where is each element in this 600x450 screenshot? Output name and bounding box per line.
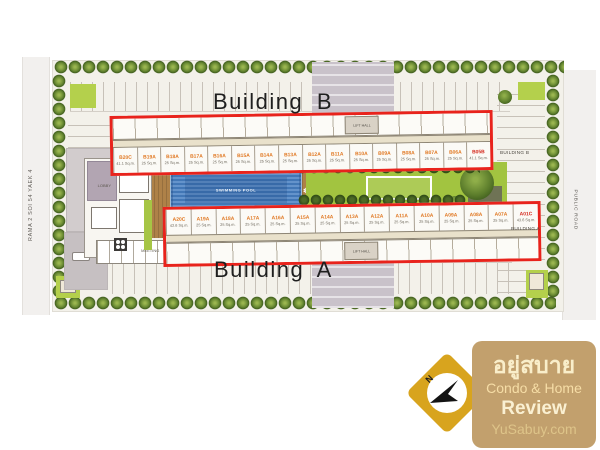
building-a-lift-hall: LIFT HALL: [344, 242, 378, 261]
building-b-outline: LIFT HALL B20C 41.1 Sq.m. B19A 25 Sq.m. …: [110, 110, 494, 176]
unit-cell: A14A 25 Sq.m.: [314, 207, 339, 232]
unit-cell: A09A 25 Sq.m.: [438, 205, 463, 230]
unit-cell: B07A 25 Sq.m.: [419, 143, 443, 168]
lobby-room: [91, 207, 117, 229]
unit-area: 25 Sq.m.: [283, 160, 298, 163]
unit-cell: B18A 25 Sq.m.: [160, 147, 184, 172]
compass-logo: N: [414, 360, 480, 426]
unit-cell: A19A 25 Sq.m.: [190, 209, 215, 234]
unit-id: B17A: [190, 154, 203, 159]
unit-cell: B08A 25 Sq.m.: [396, 143, 420, 168]
unit-id: A12A: [371, 214, 384, 219]
unit-id: B16A: [213, 154, 226, 159]
unit-id: A19A: [197, 217, 210, 222]
unit-cell: B11A 25 Sq.m.: [325, 144, 349, 169]
unit-area: 41.1 Sq.m.: [116, 162, 135, 165]
unit-id: A08A: [470, 212, 483, 217]
unit-area: 43.6 Sq.m.: [169, 224, 188, 227]
unit-area: 25 Sq.m.: [444, 220, 459, 223]
unit-cell: A08A 25 Sq.m.: [463, 205, 488, 230]
unit-area: 25 Sq.m.: [330, 159, 345, 162]
unit-cell: A10A 25 Sq.m.: [414, 206, 439, 231]
unit-id: B08A: [402, 151, 415, 156]
unit-id: B05B: [472, 149, 485, 154]
green-patch-topleft: [70, 84, 96, 108]
site-plan-canvas: RAMA 2 SOI 54 YAEK 4 PUBLIC ROAD SWIMMIN…: [0, 0, 600, 450]
tree-icon: [498, 90, 512, 104]
building-b-units-row: B20C 41.1 Sq.m. B19A 25 Sq.m. B18A 25 Sq…: [113, 142, 490, 173]
lift-hall-label: LIFT HALL: [353, 249, 370, 253]
unit-area: 25 Sq.m.: [221, 223, 236, 226]
unit-cell: B09A 25 Sq.m.: [372, 144, 396, 169]
road-right-label: PUBLIC ROAD: [569, 188, 579, 231]
unit-id: B12A: [308, 152, 321, 157]
unit-area: 25 Sq.m.: [448, 157, 463, 160]
unit-area: 25 Sq.m.: [245, 223, 260, 226]
unit-cell: A15A 25 Sq.m.: [290, 208, 315, 233]
unit-area: 25 Sq.m.: [353, 159, 368, 162]
unit-id: B13A: [284, 152, 297, 157]
unit-area: 25 Sq.m.: [369, 221, 384, 224]
tree-col-right: [546, 74, 561, 298]
green-patch-topright: [518, 82, 545, 100]
lobby-label: LOBBY: [98, 183, 111, 188]
compass-arrow-icon: [427, 373, 467, 413]
unit-area: 25 Sq.m.: [236, 160, 251, 163]
unit-cell: B14A 25 Sq.m.: [254, 145, 278, 170]
unit-id: B19A: [143, 155, 156, 160]
unit-area: 25 Sq.m.: [345, 221, 360, 224]
unit-id: B09A: [378, 151, 391, 156]
unit-id: A07A: [495, 212, 508, 217]
unit-area: 25 Sq.m.: [189, 161, 204, 164]
unit-id: B06A: [449, 150, 462, 155]
unit-area: 43.6 Sq.m.: [517, 219, 536, 222]
unit-id: A09A: [445, 213, 458, 218]
road-left-label: RAMA 2 SOI 54 YAEK 4: [27, 161, 45, 249]
unit-area: 25 Sq.m.: [469, 219, 484, 222]
unit-area: 25 Sq.m.: [424, 157, 439, 160]
unit-cell: A20C 43.6 Sq.m.: [166, 210, 191, 235]
unit-id: B20C: [119, 155, 132, 160]
unit-cell: B12A 25 Sq.m.: [302, 145, 326, 170]
building-b-lift-hall: LIFT HALL: [345, 116, 379, 135]
unit-id: B07A: [425, 150, 438, 155]
unit-id: B18A: [166, 154, 179, 159]
brand-review-text: Review: [501, 398, 566, 419]
unit-area: 25 Sq.m.: [394, 221, 409, 224]
unit-cell: B19A 25 Sq.m.: [137, 147, 161, 172]
unit-id: A16A: [271, 215, 284, 220]
unit-id: A20C: [172, 217, 185, 222]
lift-hall-label: LIFT HALL: [353, 123, 370, 127]
unit-cell: A16A 25 Sq.m.: [265, 208, 290, 233]
unit-id: A17A: [247, 216, 260, 221]
unit-cell: B20C 41.1 Sq.m.: [113, 148, 137, 173]
unit-area: 25 Sq.m.: [295, 222, 310, 225]
building-a-title: Building A: [214, 257, 333, 283]
building-a-side-label: BUILDING A: [511, 226, 540, 231]
unit-cell: B16A 25 Sq.m.: [207, 146, 231, 171]
watermark-panel: อยู่สบาย Condo & Home Review YuSabuy.com: [472, 341, 596, 448]
unit-id: B10A: [355, 151, 368, 156]
unit-area: 25 Sq.m.: [259, 160, 274, 163]
unit-id: A15A: [296, 215, 309, 220]
unit-id: A11A: [396, 213, 408, 218]
unit-id: A14A: [321, 215, 334, 220]
unit-id: B14A: [260, 153, 273, 158]
unit-area: 25 Sq.m.: [320, 222, 335, 225]
unit-cell: B10A 25 Sq.m.: [349, 144, 373, 169]
unit-area: 25 Sq.m.: [196, 224, 211, 227]
building-b-title: Building B: [213, 89, 333, 115]
unit-cell: A13A 25 Sq.m.: [339, 207, 364, 232]
unit-area: 25 Sq.m.: [306, 159, 321, 162]
green-strip-lobby: [144, 200, 152, 250]
unit-cell: B05B 41.1 Sq.m.: [466, 142, 490, 167]
unit-cell: A17A 25 Sq.m.: [240, 208, 265, 233]
unit-cell: A11A 25 Sq.m.: [389, 206, 414, 231]
unit-cell: A07A 25 Sq.m.: [488, 204, 513, 229]
unit-cell: A18A 25 Sq.m.: [215, 209, 240, 234]
unit-area: 25 Sq.m.: [141, 162, 156, 165]
unit-cell: B13A 25 Sq.m.: [278, 145, 302, 170]
unit-area: 41.1 Sq.m.: [470, 157, 489, 160]
unit-cell: A12A 25 Sq.m.: [364, 206, 389, 231]
unit-id: A10A: [420, 213, 433, 218]
unit-id: B11A: [331, 152, 343, 157]
unit-id: A18A: [222, 216, 235, 221]
tree-row-top: [54, 60, 564, 75]
swimming-pool-label: SWIMMING POOL: [204, 180, 269, 201]
unit-cell: B15A 25 Sq.m.: [231, 146, 255, 171]
unit-area: 25 Sq.m.: [401, 158, 416, 161]
unit-id: A01C: [519, 211, 532, 216]
building-b-side-label: BUILDING B: [500, 150, 529, 155]
unit-area: 25 Sq.m.: [165, 161, 180, 164]
brand-subtitle: Condo & Home: [486, 380, 582, 396]
unit-area: 25 Sq.m.: [377, 158, 392, 161]
parking-left: [68, 118, 112, 148]
unit-area: 25 Sq.m.: [212, 161, 227, 164]
unit-area: 25 Sq.m.: [493, 219, 508, 222]
road-right-strip: [562, 70, 596, 320]
brand-thai-text: อยู่สบาย: [493, 352, 575, 378]
unit-id: A13A: [346, 214, 359, 219]
unit-area: 25 Sq.m.: [419, 220, 434, 223]
unit-cell: B06A 25 Sq.m.: [443, 142, 467, 167]
unit-id: B15A: [237, 153, 250, 158]
unit-cell: B17A 25 Sq.m.: [184, 146, 208, 171]
mailbox-icon: [114, 238, 127, 251]
guard-hut-right: [529, 273, 544, 290]
brand-url: YuSabuy.com: [491, 421, 576, 437]
unit-area: 25 Sq.m.: [270, 223, 285, 226]
tree-row-bottom: [54, 296, 556, 311]
